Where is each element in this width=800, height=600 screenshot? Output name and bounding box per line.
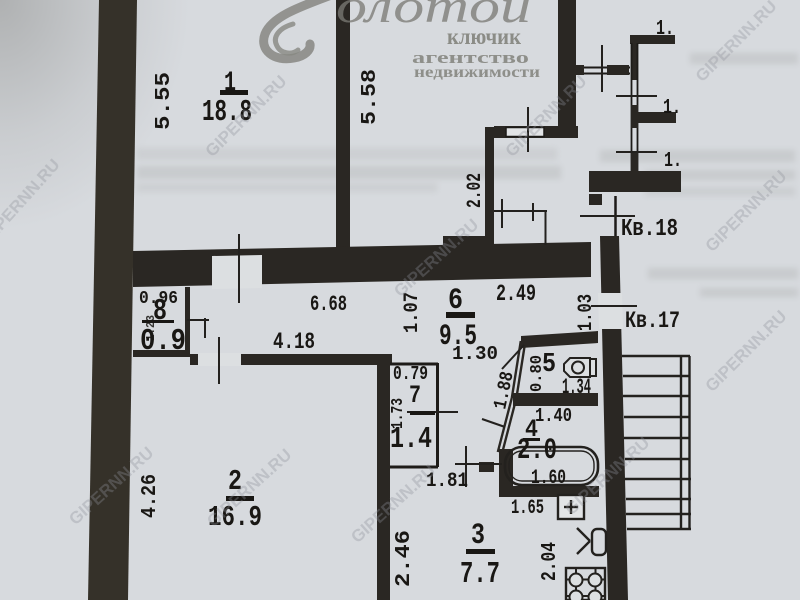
svg-text:1.23: 1.23 bbox=[144, 315, 158, 341]
svg-text:1.60: 1.60 bbox=[531, 467, 566, 490]
svg-text:4.26: 4.26 bbox=[139, 474, 162, 518]
svg-text:2.04: 2.04 bbox=[539, 542, 562, 581]
svg-text:3: 3 bbox=[471, 519, 485, 553]
svg-text:1.: 1. bbox=[656, 18, 674, 41]
svg-text:1.34: 1.34 bbox=[562, 375, 591, 400]
svg-text:Кв.17: Кв.17 bbox=[625, 308, 680, 334]
svg-text:6.68: 6.68 bbox=[310, 292, 347, 317]
svg-text:2.49: 2.49 bbox=[496, 281, 536, 307]
svg-text:1.40: 1.40 bbox=[535, 405, 572, 427]
svg-text:0.80: 0.80 bbox=[528, 355, 547, 392]
svg-text:5.55: 5.55 bbox=[153, 72, 176, 130]
svg-text:4.18: 4.18 bbox=[273, 329, 315, 355]
svg-text:1.4: 1.4 bbox=[390, 422, 432, 457]
svg-text:5.58: 5.58 bbox=[359, 69, 382, 125]
svg-text:1.65: 1.65 bbox=[511, 497, 544, 520]
svg-text:Кв.18: Кв.18 bbox=[621, 216, 678, 243]
svg-text:7: 7 bbox=[409, 381, 421, 410]
svg-text:1.: 1. bbox=[664, 150, 682, 173]
svg-text:ключик: ключик bbox=[447, 24, 522, 49]
svg-text:2.02: 2.02 bbox=[464, 173, 487, 208]
svg-text:7.7: 7.7 bbox=[460, 557, 500, 592]
svg-text:1.: 1. bbox=[663, 97, 681, 120]
svg-text:2.0: 2.0 bbox=[517, 434, 557, 468]
svg-text:2.46: 2.46 bbox=[393, 530, 416, 587]
svg-text:недвижимости: недвижимости bbox=[414, 64, 540, 81]
svg-text:1.03: 1.03 bbox=[575, 294, 598, 331]
svg-text:1.30: 1.30 bbox=[452, 343, 498, 365]
